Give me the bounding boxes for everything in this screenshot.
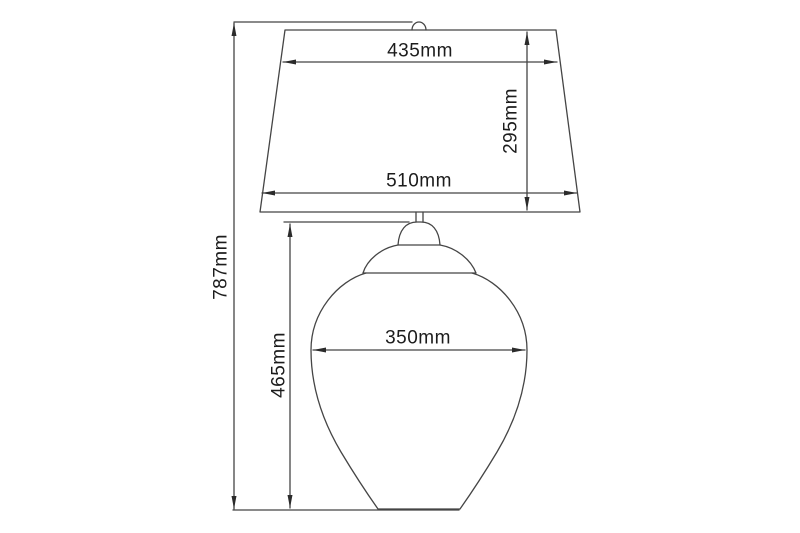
- dimension-drawing: 435mm 295mm 510mm 787mm 465mm 350mm: [0, 0, 800, 533]
- dim-label-shade-bottom-width: 510mm: [386, 172, 452, 191]
- lamp-body-outline: [311, 273, 527, 509]
- dim-label-shade-height: 295mm: [502, 88, 521, 154]
- neck-small-dome: [398, 222, 440, 245]
- dim-label-body-width: 350mm: [385, 329, 451, 348]
- lamp-line-drawing: [0, 0, 800, 533]
- dim-label-shade-top-width: 435mm: [387, 42, 453, 61]
- lamp-stem: [416, 212, 423, 222]
- neck-tier-dome: [363, 245, 476, 273]
- finial-arc: [412, 22, 426, 30]
- dim-label-body-height: 465mm: [270, 332, 289, 398]
- dim-label-total-height: 787mm: [212, 234, 231, 300]
